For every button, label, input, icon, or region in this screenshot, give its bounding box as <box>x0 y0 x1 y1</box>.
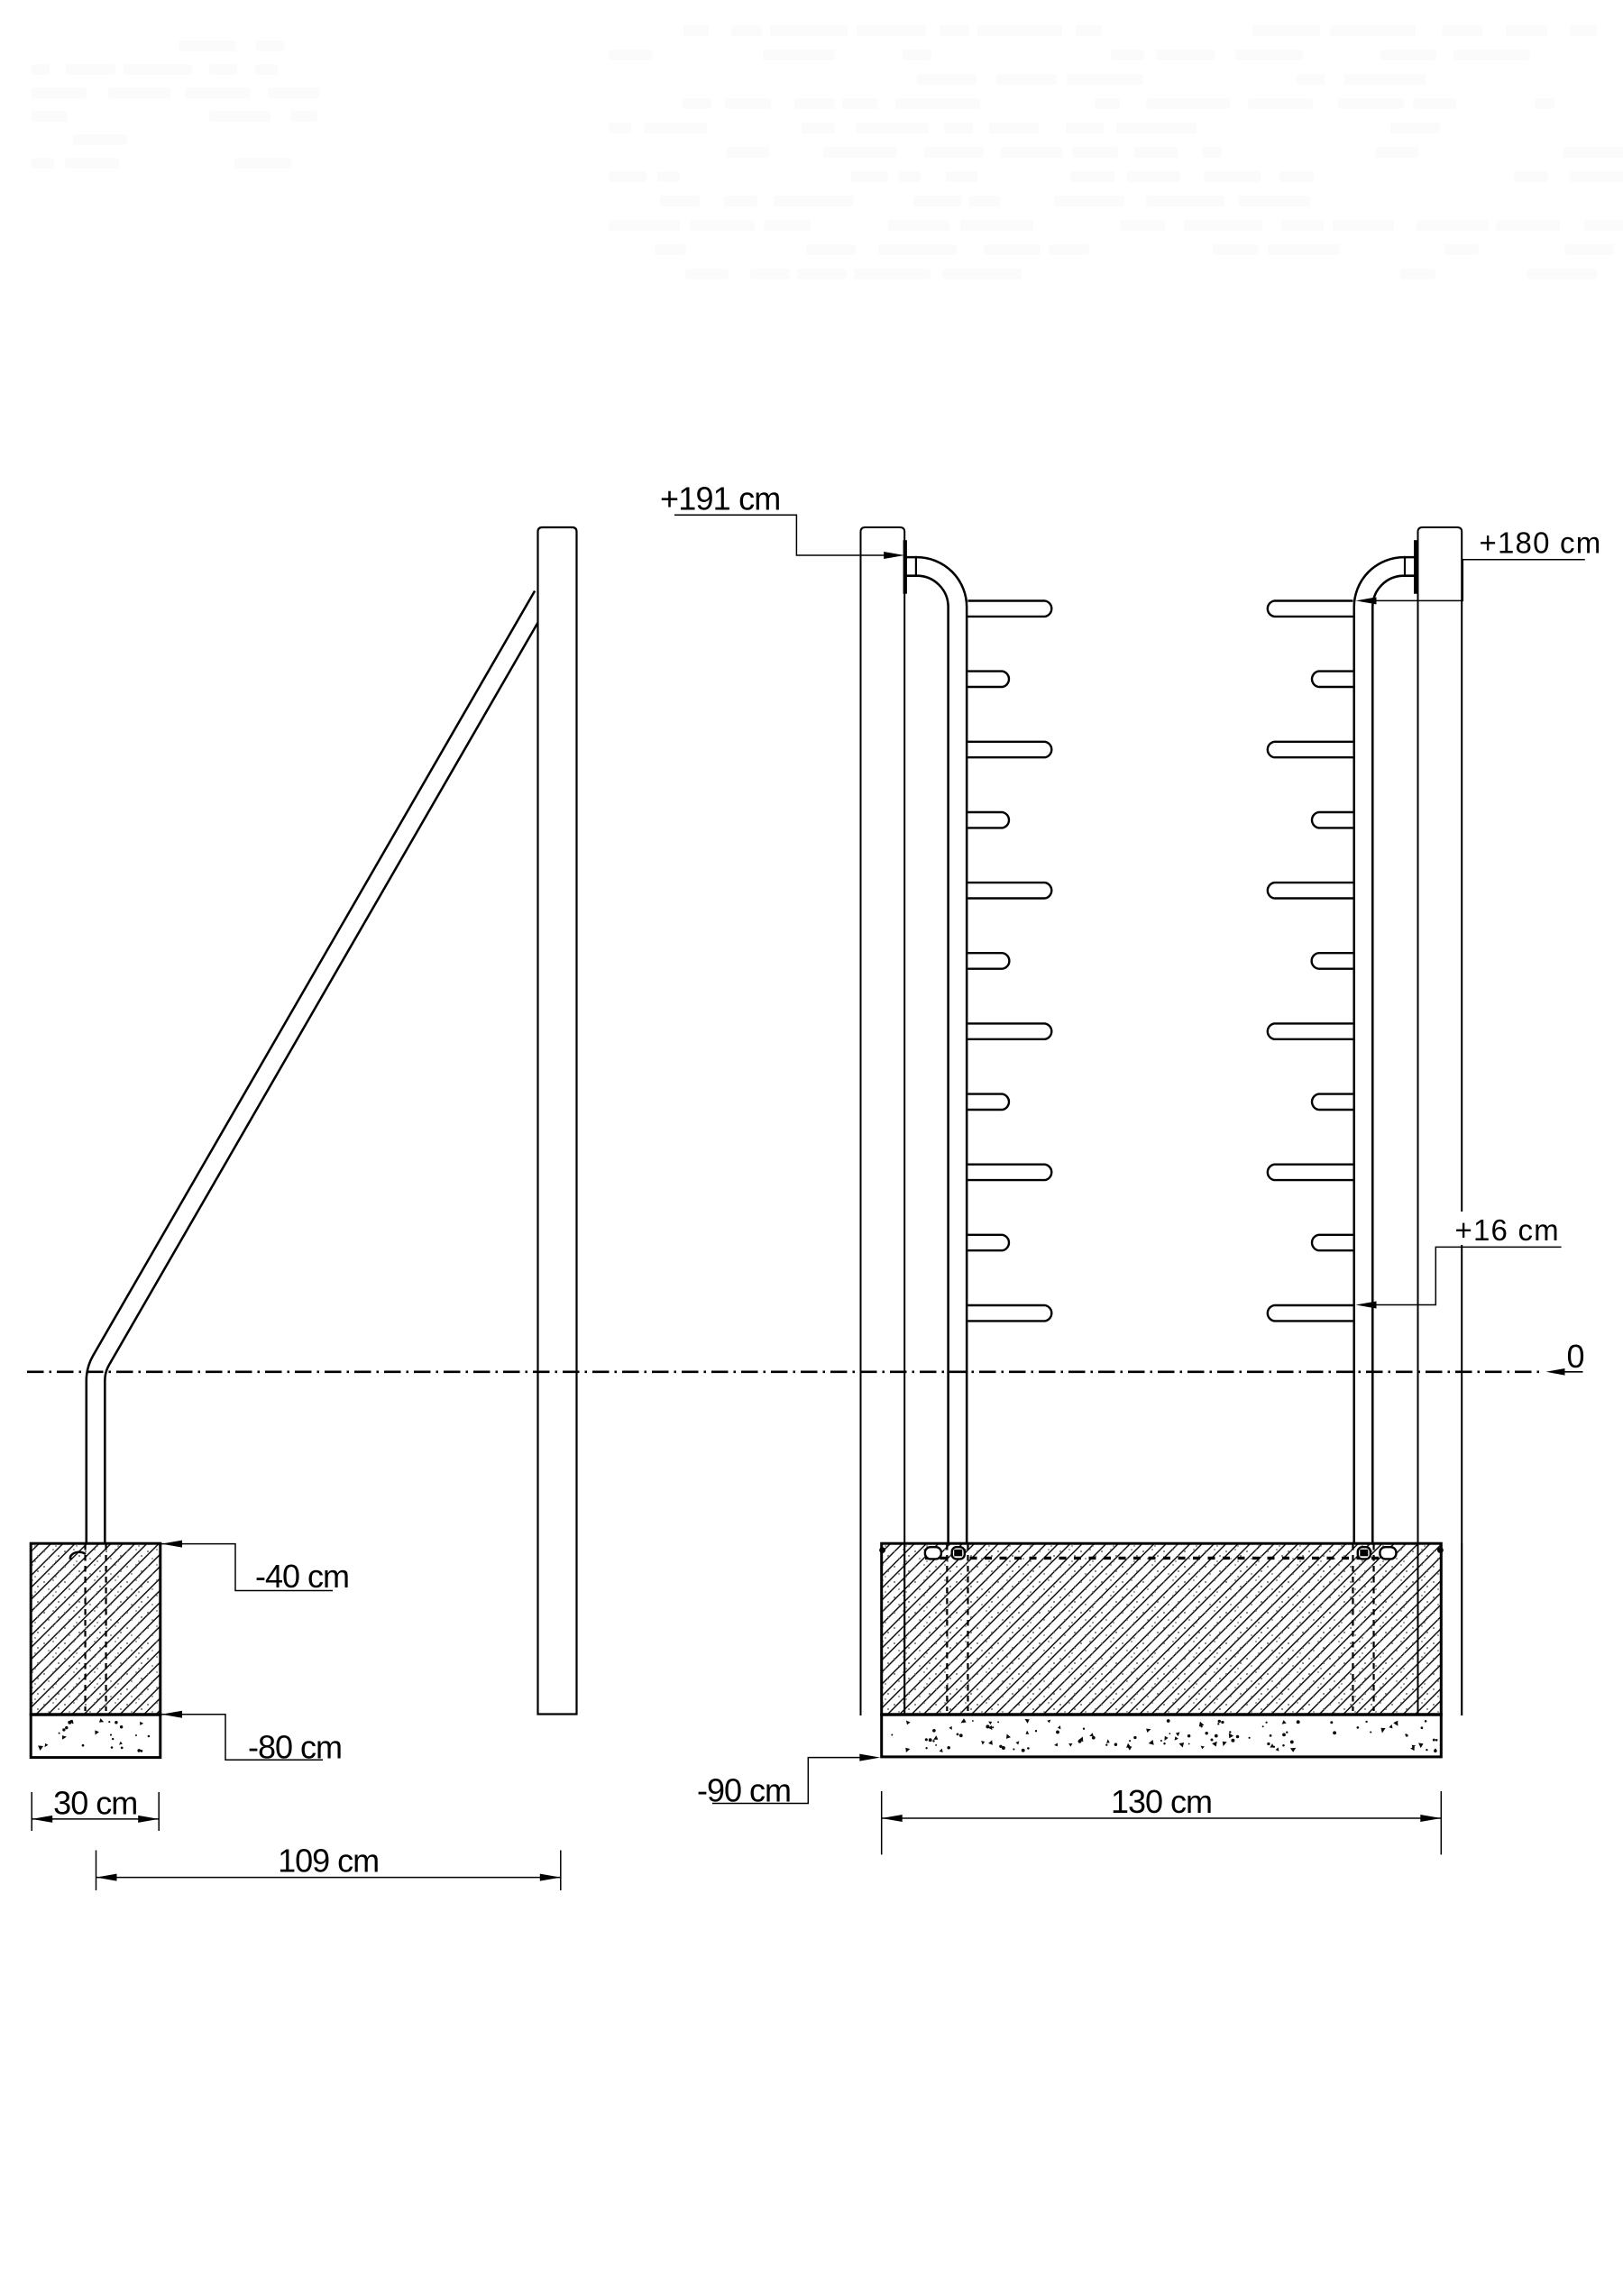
svg-text:130 cm: 130 cm <box>1111 1783 1212 1820</box>
svg-text:-40 cm: -40 cm <box>255 1558 349 1595</box>
svg-text:109 cm: 109 cm <box>278 1843 379 1880</box>
svg-text:30 cm: 30 cm <box>53 1785 137 1822</box>
svg-text:+180 cm: +180 cm <box>1480 526 1602 560</box>
svg-text:-90 cm: -90 cm <box>697 1772 791 1809</box>
svg-text:-80 cm: -80 cm <box>248 1729 342 1766</box>
svg-text:+191 cm: +191 cm <box>660 480 780 517</box>
svg-text:+16 cm: +16 cm <box>1455 1213 1560 1247</box>
svg-text:0: 0 <box>1566 1338 1584 1375</box>
